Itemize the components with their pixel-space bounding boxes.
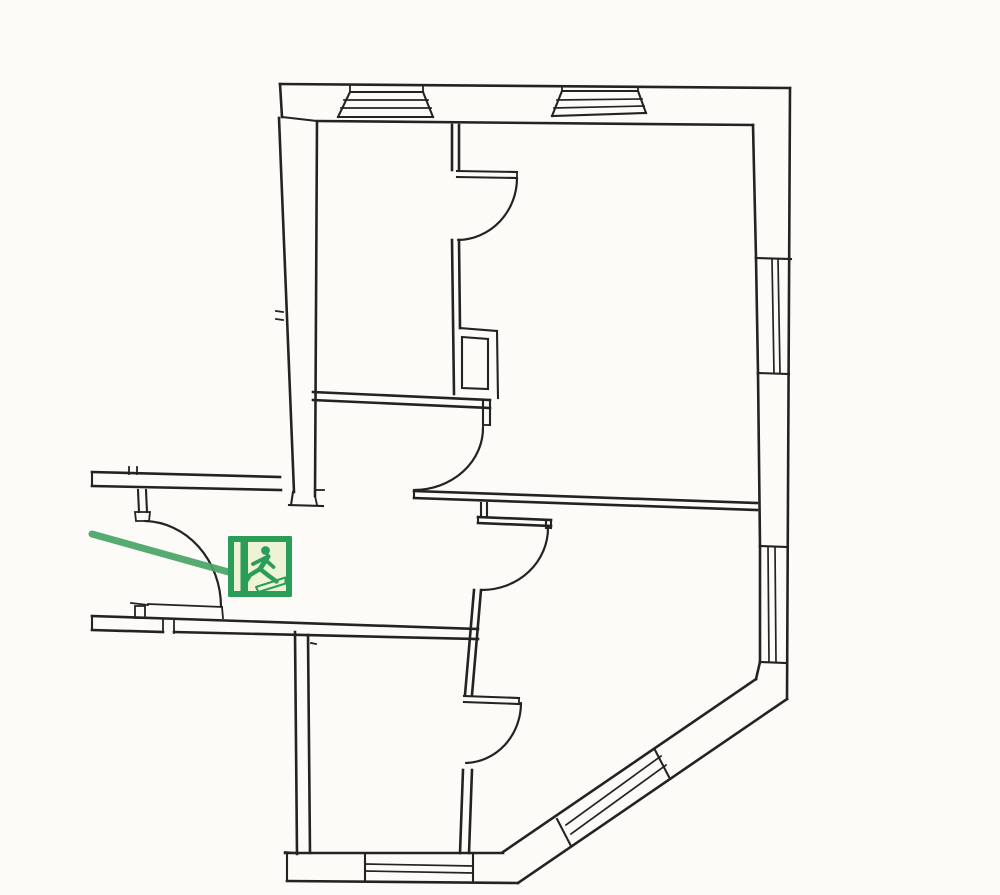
floor-plan-page bbox=[0, 0, 1000, 895]
escape-route-line bbox=[92, 534, 232, 573]
interior-walls bbox=[285, 125, 757, 854]
escape-route bbox=[92, 534, 232, 573]
shaft-niche bbox=[460, 328, 498, 398]
door-symbols bbox=[135, 171, 551, 763]
window-symbols bbox=[365, 258, 791, 882]
door-swing-arc bbox=[458, 178, 517, 240]
heater-symbols bbox=[338, 85, 646, 117]
heater-symbol-left bbox=[338, 85, 433, 117]
floor-plan-drawing bbox=[0, 0, 1000, 895]
window-right-lower bbox=[760, 546, 787, 663]
door-bottom-rooms bbox=[464, 696, 521, 763]
window-bottom bbox=[365, 854, 473, 882]
heater-symbol-right bbox=[552, 86, 646, 116]
door-hallway bbox=[414, 401, 490, 490]
exterior-walls bbox=[276, 84, 790, 883]
door-swing-arc bbox=[482, 528, 548, 590]
door-swing-arc bbox=[466, 703, 521, 763]
door-bottom-right-room bbox=[482, 520, 551, 590]
window-right-upper bbox=[756, 258, 791, 374]
window-diagonal bbox=[557, 750, 669, 846]
emergency-exit-sign bbox=[228, 536, 292, 597]
door-top-rooms bbox=[457, 171, 517, 240]
door-swing-arc bbox=[414, 427, 483, 490]
